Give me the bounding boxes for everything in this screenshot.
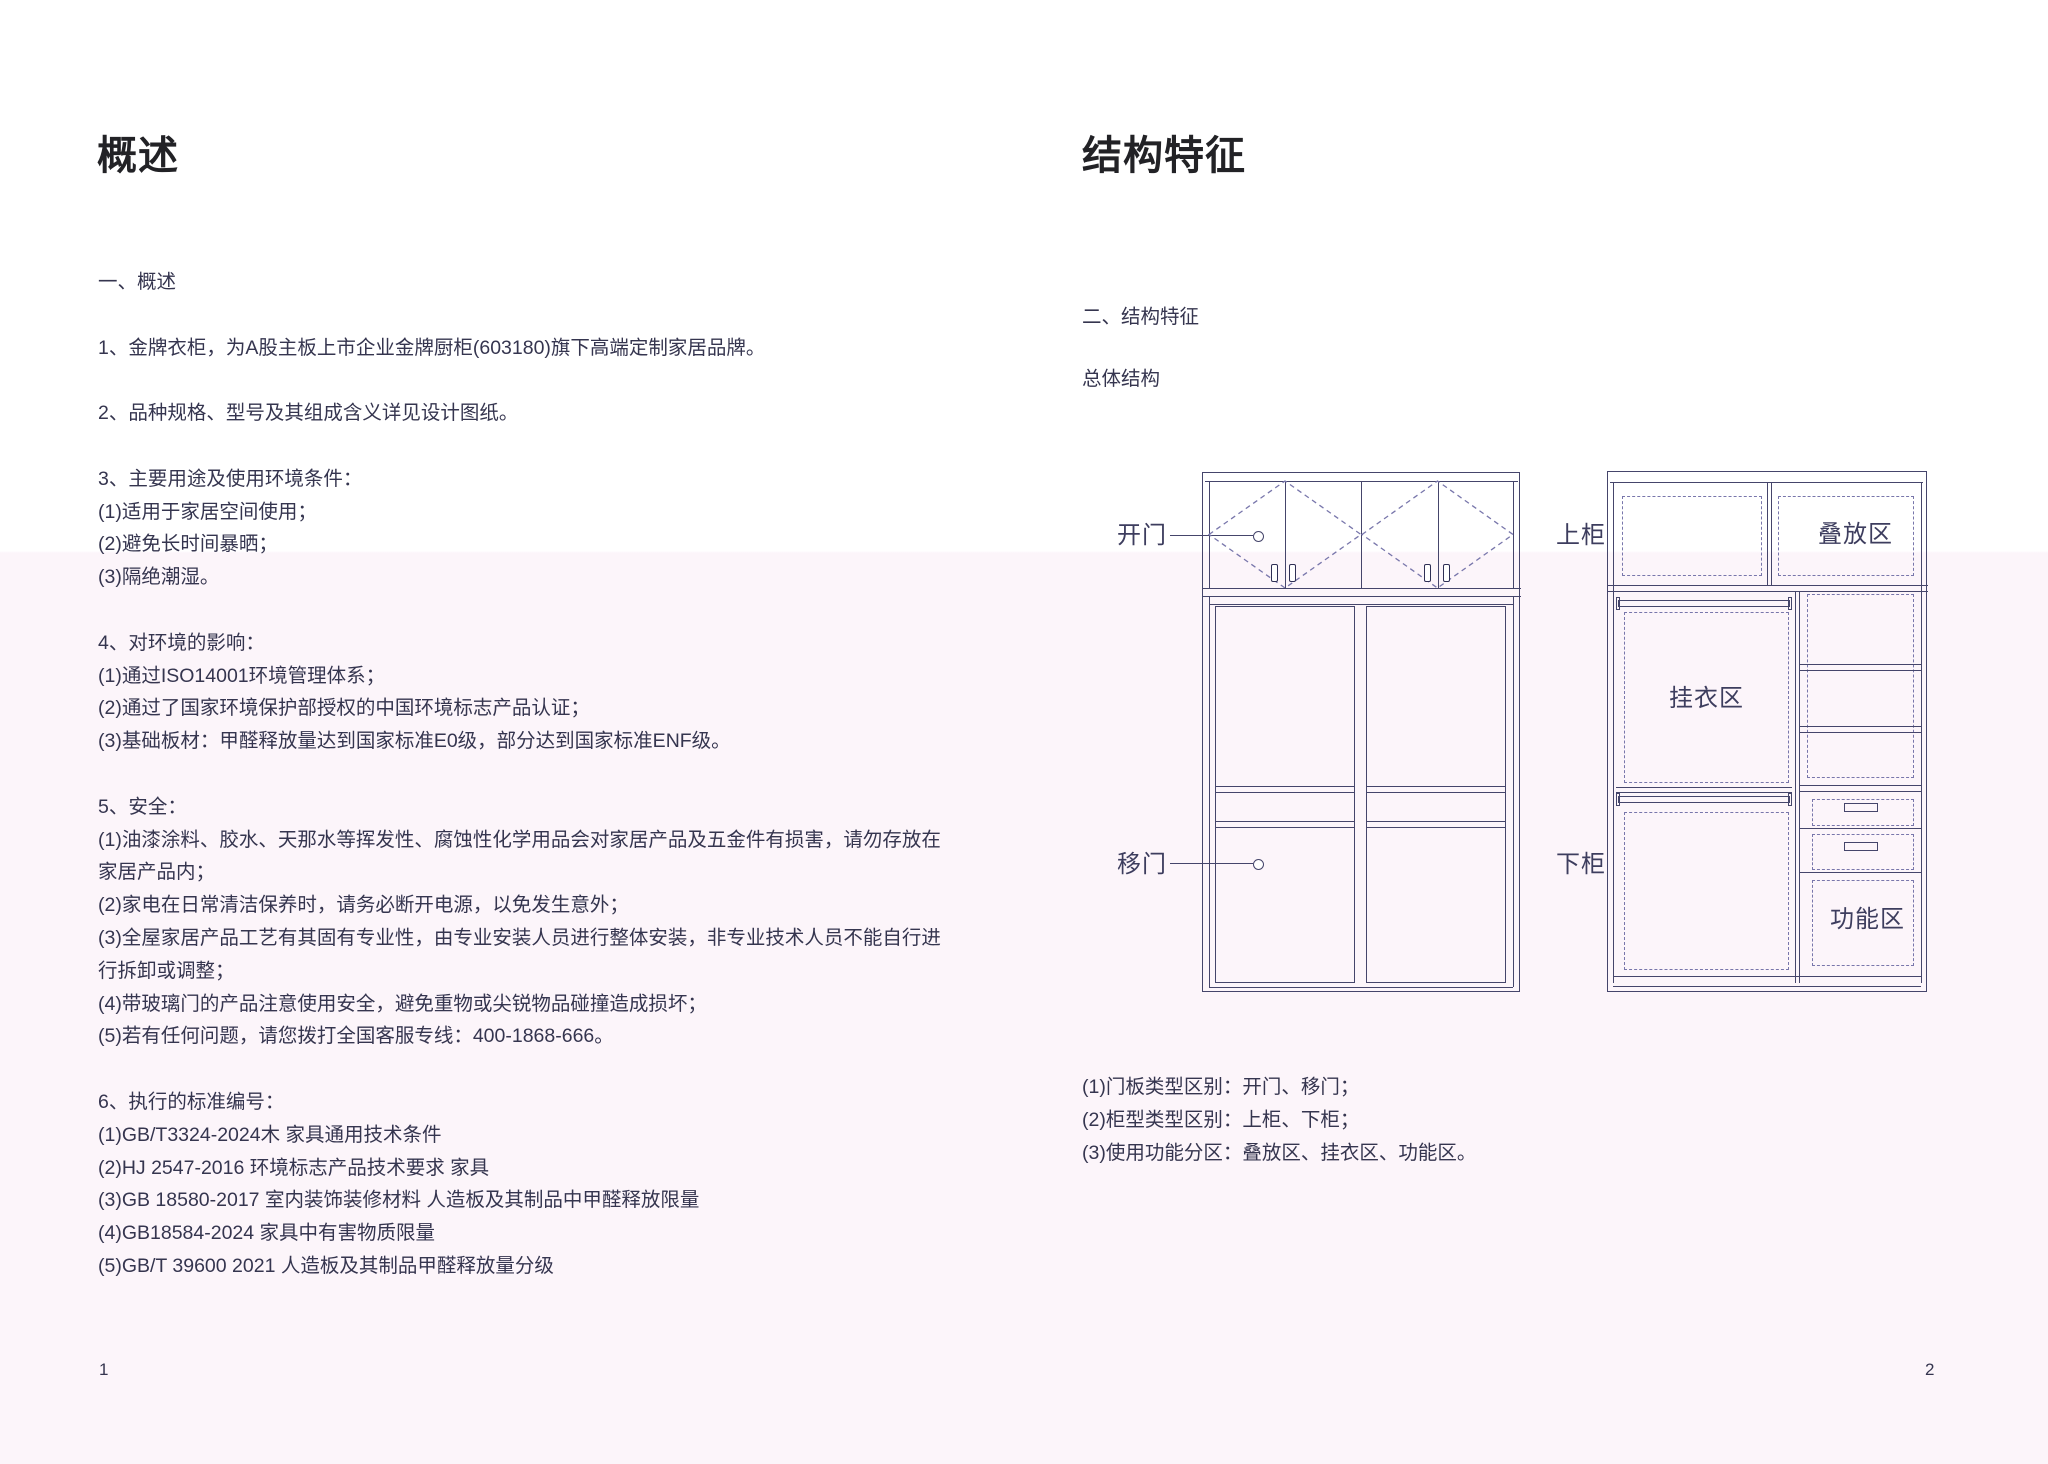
cabinet-line: [1209, 604, 1513, 605]
cabinet-line: [1921, 482, 1922, 983]
text-line: 5、安全：: [98, 791, 798, 824]
page-title-overview: 概述: [97, 134, 179, 178]
text-line: (2)柜型类型区别：上柜、下柜；: [1082, 1104, 1782, 1137]
hanging-rod: [1618, 600, 1790, 607]
text-line: (1)门板类型区别：开门、移门；: [1082, 1071, 1782, 1104]
panel-rail: [1215, 786, 1355, 793]
shelf-line: [1799, 726, 1921, 733]
door-handle: [1289, 564, 1296, 582]
right-section-heading: 二、结构特征: [1082, 306, 1199, 329]
shelf-line: [1799, 785, 1921, 792]
hanging-rod-cap: [1616, 793, 1620, 806]
leader-dot-open-door: [1253, 531, 1264, 542]
text-line: 家居产品内；: [98, 856, 798, 889]
hanging-rod: [1618, 796, 1790, 803]
door-handle: [1424, 564, 1431, 582]
drawer-handle: [1844, 842, 1878, 851]
paragraph-group: 一、概述: [98, 266, 798, 299]
text-line: (5)GB/T 39600 2021 人造板及其制品甲醛释放量分级: [98, 1250, 798, 1283]
sliding-panel: [1366, 606, 1506, 983]
cabinet-line: [1203, 588, 1521, 589]
manual-spread: 概述 一、概述1、金牌衣柜，为A股主板上市企业金牌厨柜(603180)旗下高端定…: [0, 0, 2048, 1464]
dashed-zone-stacking: [1622, 496, 1762, 576]
text-line: (3)隔绝潮湿。: [98, 561, 798, 594]
panel-rail: [1215, 821, 1355, 828]
cabinet-line: [1209, 987, 1513, 988]
text-line: 2、品种规格、型号及其组成含义详见设计图纸。: [98, 397, 798, 430]
leader-dot-sliding-door: [1253, 859, 1264, 870]
label-upper-cabinet: 上柜: [1556, 524, 1606, 548]
drawer-outline: [1812, 834, 1914, 870]
wardrobe-internal-diagram: 叠放区 挂衣区 功能区: [1607, 471, 1927, 992]
label-stacking-zone: 叠放区: [1818, 523, 1893, 547]
left-page-body: 一、概述1、金牌衣柜，为A股主板上市企业金牌厨柜(603180)旗下高端定制家居…: [98, 266, 798, 1316]
paragraph-group: 1、金牌衣柜，为A股主板上市企业金牌厨柜(603180)旗下高端定制家居品牌。: [98, 332, 798, 365]
cabinet-line: [1608, 585, 1928, 586]
text-line: (3)全屋家居产品工艺有其固有专业性，由专业安装人员进行整体安装，非专业技术人员…: [98, 922, 798, 955]
door-swing-diamond: [1209, 481, 1361, 588]
sliding-panel: [1215, 606, 1355, 983]
page-title-structure: 结构特征: [1082, 134, 1246, 178]
text-line: (1)GB/T3324-2024木 家具通用技术条件: [98, 1119, 798, 1152]
label-function-zone: 功能区: [1830, 908, 1905, 932]
dashed-zone-shelves: [1807, 594, 1914, 778]
panel-rail: [1366, 786, 1506, 793]
text-line: 一、概述: [98, 266, 798, 299]
text-line: (2)HJ 2547-2016 环境标志产品技术要求 家具: [98, 1152, 798, 1185]
cabinet-line: [1209, 596, 1210, 987]
cabinet-line: [1799, 828, 1921, 829]
text-line: (3)使用功能分区：叠放区、挂衣区、功能区。: [1082, 1137, 1782, 1170]
text-line: (3)GB 18580-2017 室内装饰装修材料 人造板及其制品中甲醛释放限量: [98, 1184, 798, 1217]
cabinet-line: [1203, 596, 1521, 597]
cabinet-line: [1513, 596, 1514, 987]
text-line: (3)基础板材：甲醛释放量达到国家标准E0级，部分达到国家标准ENF级。: [98, 725, 798, 758]
text-line: 3、主要用途及使用环境条件：: [98, 463, 798, 496]
hanging-rod-cap: [1788, 597, 1792, 610]
paragraph-group: 5、安全：(1)油漆涂料、胶水、天那水等挥发性、腐蚀性化学用品会对家居产品及五金…: [98, 791, 798, 1053]
text-line: 6、执行的标准编号：: [98, 1086, 798, 1119]
page-number-left: 1: [99, 1361, 108, 1378]
text-line: 行拆卸或调整；: [98, 955, 798, 988]
cabinet-divider: [1771, 482, 1772, 585]
wardrobe-front-diagram: [1202, 472, 1520, 992]
cabinet-line: [1613, 986, 1921, 987]
diagram-caption: 总体结构: [1082, 368, 1160, 391]
door-swing-diamond: [1362, 481, 1513, 588]
text-line: (1)油漆涂料、胶水、天那水等挥发性、腐蚀性化学用品会对家居产品及五金件有损害，…: [98, 824, 798, 857]
cabinet-line: [1608, 591, 1928, 592]
text-line: (5)若有任何问题，请您拨打全国客服专线：400-1868-666。: [98, 1020, 798, 1053]
shelf-line: [1616, 787, 1792, 793]
label-sliding-door: 移门: [1117, 853, 1167, 877]
paragraph-group: 3、主要用途及使用环境条件：(1)适用于家居空间使用；(2)避免长时间暴晒；(3…: [98, 463, 798, 594]
label-hanging-zone: 挂衣区: [1669, 687, 1744, 711]
cabinet-divider: [1795, 591, 1796, 983]
text-line: 1、金牌衣柜，为A股主板上市企业金牌厨柜(603180)旗下高端定制家居品牌。: [98, 332, 798, 365]
shelf-line: [1799, 664, 1921, 671]
hanging-rod-cap: [1788, 793, 1792, 806]
paragraph-group: 4、对环境的影响：(1)通过ISO14001环境管理体系；(2)通过了国家环境保…: [98, 627, 798, 758]
cabinet-line: [1613, 976, 1921, 977]
text-line: (2)家电在日常清洁保养时，请务必断开电源，以免发生意外；: [98, 889, 798, 922]
door-handle: [1443, 564, 1450, 582]
cabinet-line: [1613, 482, 1614, 983]
right-page-notes: (1)门板类型区别：开门、移门；(2)柜型类型区别：上柜、下柜；(3)使用功能分…: [1082, 1071, 1782, 1169]
page-number-right: 2: [1925, 1361, 1934, 1378]
text-line: (4)带玻璃门的产品注意使用安全，避免重物或尖锐物品碰撞造成损坏；: [98, 988, 798, 1021]
text-line: (2)通过了国家环境保护部授权的中国环境标志产品认证；: [98, 692, 798, 725]
text-line: (1)通过ISO14001环境管理体系；: [98, 660, 798, 693]
label-lower-cabinet: 下柜: [1556, 853, 1606, 877]
text-line: (1)适用于家居空间使用；: [98, 496, 798, 529]
drawer-handle: [1844, 803, 1878, 812]
dashed-zone-hanging: [1624, 812, 1789, 970]
text-line: 4、对环境的影响：: [98, 627, 798, 660]
cabinet-line: [1513, 481, 1514, 588]
door-handle: [1271, 564, 1278, 582]
hanging-rod-cap: [1616, 597, 1620, 610]
label-open-door: 开门: [1117, 524, 1167, 548]
cabinet-line: [1799, 872, 1921, 873]
paragraph-group: 6、执行的标准编号：(1)GB/T3324-2024木 家具通用技术条件(2)H…: [98, 1086, 798, 1283]
paragraph-group: 2、品种规格、型号及其组成含义详见设计图纸。: [98, 397, 798, 430]
panel-rail: [1366, 821, 1506, 828]
text-line: (2)避免长时间暴晒；: [98, 528, 798, 561]
cabinet-divider: [1767, 482, 1768, 585]
text-line: (4)GB18584-2024 家具中有害物质限量: [98, 1217, 798, 1250]
